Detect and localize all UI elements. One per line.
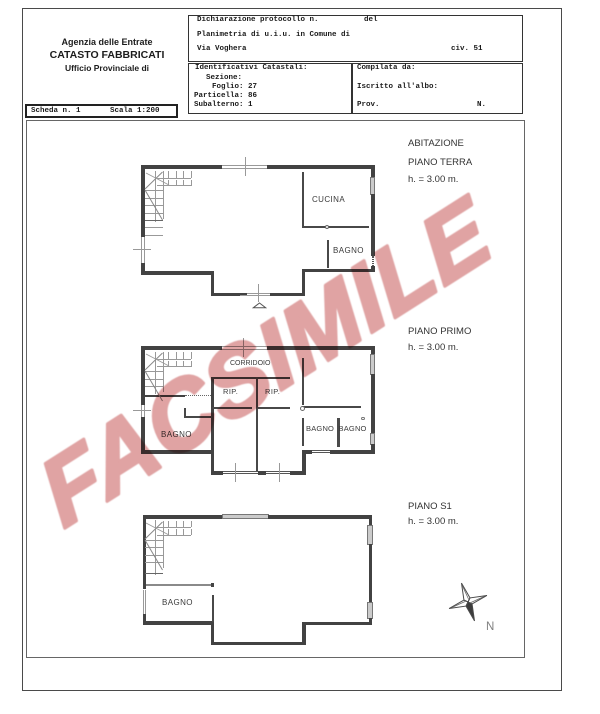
svg-text:FACSIMILE: FACSIMILE [24,176,508,547]
